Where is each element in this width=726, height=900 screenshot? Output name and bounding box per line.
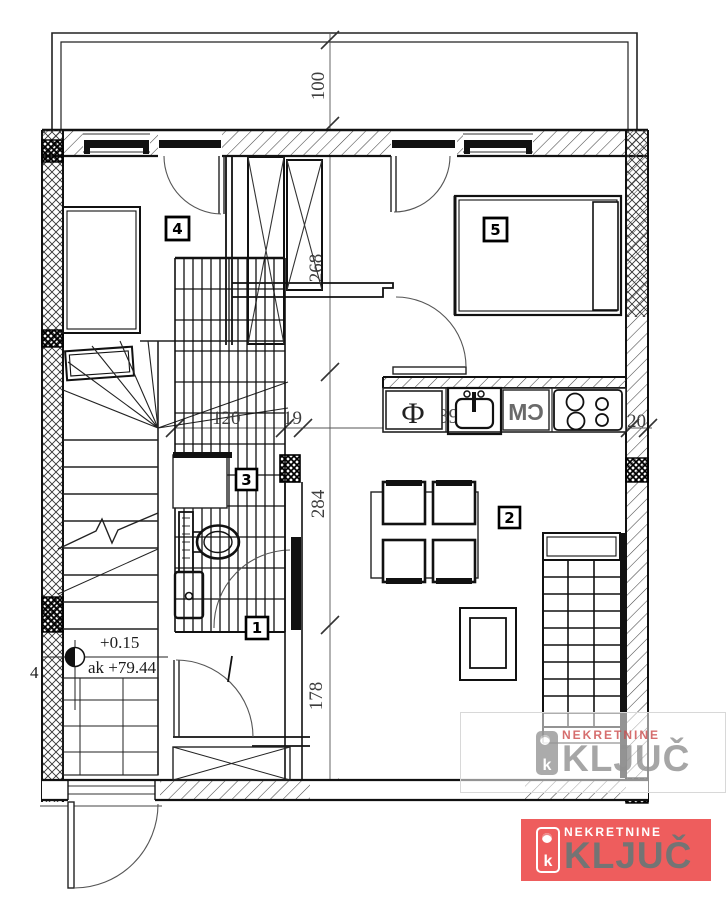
right-wall [626, 130, 648, 803]
room-label-5: 5 [484, 218, 507, 241]
door-tick [228, 656, 232, 682]
key-letter: k [536, 758, 558, 774]
dim-cut-label: 4 [30, 663, 39, 682]
room-5 [455, 196, 621, 315]
room-label-4: 4 [166, 217, 189, 240]
entrance-door [40, 802, 162, 888]
dim-entry-height: 178 [306, 682, 327, 711]
wall-block [280, 455, 300, 482]
room-label-4-text: 4 [172, 220, 182, 238]
room-label-1-text: 1 [252, 619, 262, 637]
key-head-icon [540, 735, 550, 745]
room-label-2: 2 [499, 507, 520, 528]
chair [383, 482, 425, 524]
room-label-3: 3 [236, 469, 257, 490]
watermark-logo: k NEKRETNINE KLJUČ [460, 712, 726, 793]
key-icon: k [536, 827, 560, 873]
logo-brand-main: KLJUČ [564, 837, 692, 874]
dim-wall-right: 20 [627, 411, 646, 432]
bed-room4 [63, 207, 140, 333]
room-label-2-text: 2 [504, 509, 514, 527]
room-label-5-text: 5 [490, 221, 500, 239]
toilet [179, 512, 239, 572]
wardrobe-1 [248, 157, 284, 344]
pillow [593, 202, 618, 310]
elevation-relative: +0.15 [100, 633, 139, 652]
logo-brand-main: KLJUČ [562, 740, 690, 777]
left-wall [42, 130, 63, 802]
key-letter: k [538, 854, 558, 870]
dim-living-height: 284 [308, 489, 329, 518]
dining-set [371, 480, 478, 584]
hall-door [174, 660, 253, 737]
room-4 [63, 156, 232, 380]
chair [383, 540, 425, 582]
dim-wall-gap: 19 [283, 408, 302, 429]
tv-cabinet [460, 608, 516, 680]
footer-logo: k NEKRETNINE KLJUČ [521, 819, 711, 881]
hall-right-wall [285, 482, 302, 780]
room-label-1: 1 [246, 617, 268, 639]
floorplan-page: 100 268 284 178 [0, 0, 726, 900]
dim-bath-width: 120 [212, 408, 241, 429]
bathroom-sink [175, 572, 203, 618]
bed-room5 [455, 196, 621, 315]
room-label-3-text: 3 [241, 471, 251, 489]
fridge: Ф [386, 391, 442, 430]
kitchen: 391 Ф СМ 20 [383, 377, 646, 434]
wardrobe-2 [287, 160, 322, 290]
entry-grid [63, 678, 158, 775]
fridge-symbol: Ф [401, 397, 425, 430]
chair [433, 482, 475, 524]
dim-balcony-depth: 100 [308, 72, 329, 101]
key-icon: k [536, 731, 558, 775]
shoe-mat [173, 747, 290, 780]
desk-room4 [65, 347, 134, 381]
door-frame-bar [291, 537, 301, 630]
chair [433, 540, 475, 582]
elevation-absolute: ak +79.44 [88, 658, 157, 677]
balcony-outline [52, 33, 637, 130]
break-line [58, 513, 158, 549]
key-head-icon [542, 833, 552, 843]
dishwasher-label: СМ [508, 399, 543, 425]
stairs-main [58, 341, 288, 775]
laundry-box [173, 452, 232, 508]
